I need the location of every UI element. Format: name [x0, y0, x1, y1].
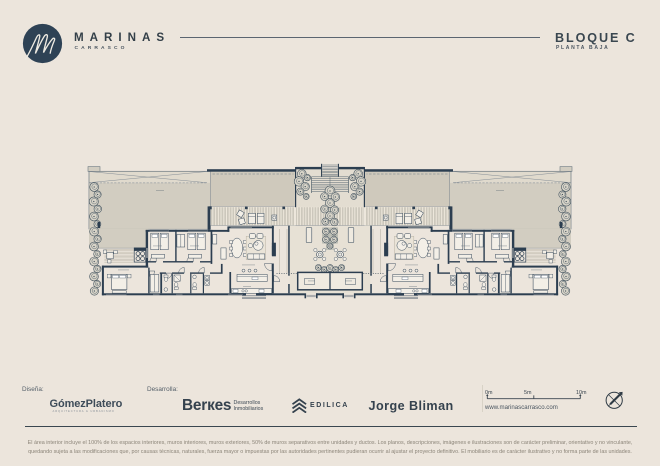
svg-text:10m: 10m	[576, 390, 587, 396]
svg-text:0m: 0m	[485, 390, 493, 396]
svg-text:5m: 5m	[524, 390, 532, 396]
